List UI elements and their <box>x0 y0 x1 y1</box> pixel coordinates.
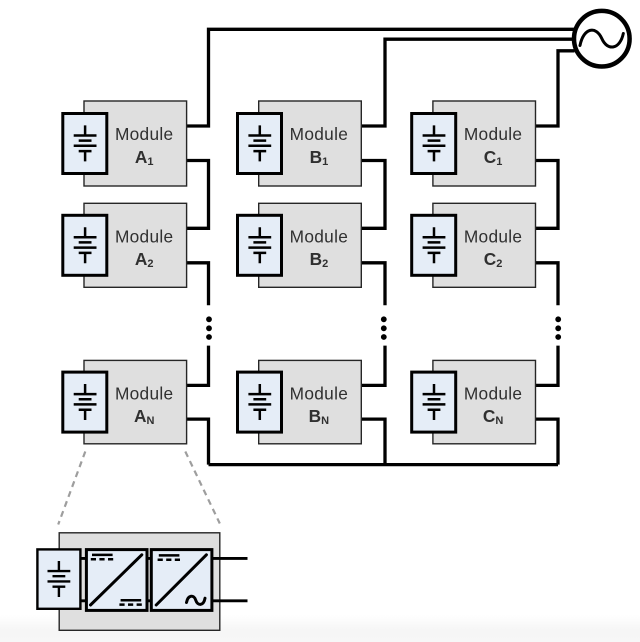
svg-text:Module: Module <box>464 226 522 246</box>
svg-text:Module: Module <box>290 226 348 246</box>
svg-text:Module: Module <box>115 383 173 403</box>
svg-text:Module: Module <box>290 383 348 403</box>
svg-text:Module: Module <box>464 124 522 144</box>
svg-text:Module: Module <box>290 124 348 144</box>
svg-text:Module: Module <box>115 226 173 246</box>
svg-text:Module: Module <box>115 124 173 144</box>
svg-text:Module: Module <box>464 383 522 403</box>
